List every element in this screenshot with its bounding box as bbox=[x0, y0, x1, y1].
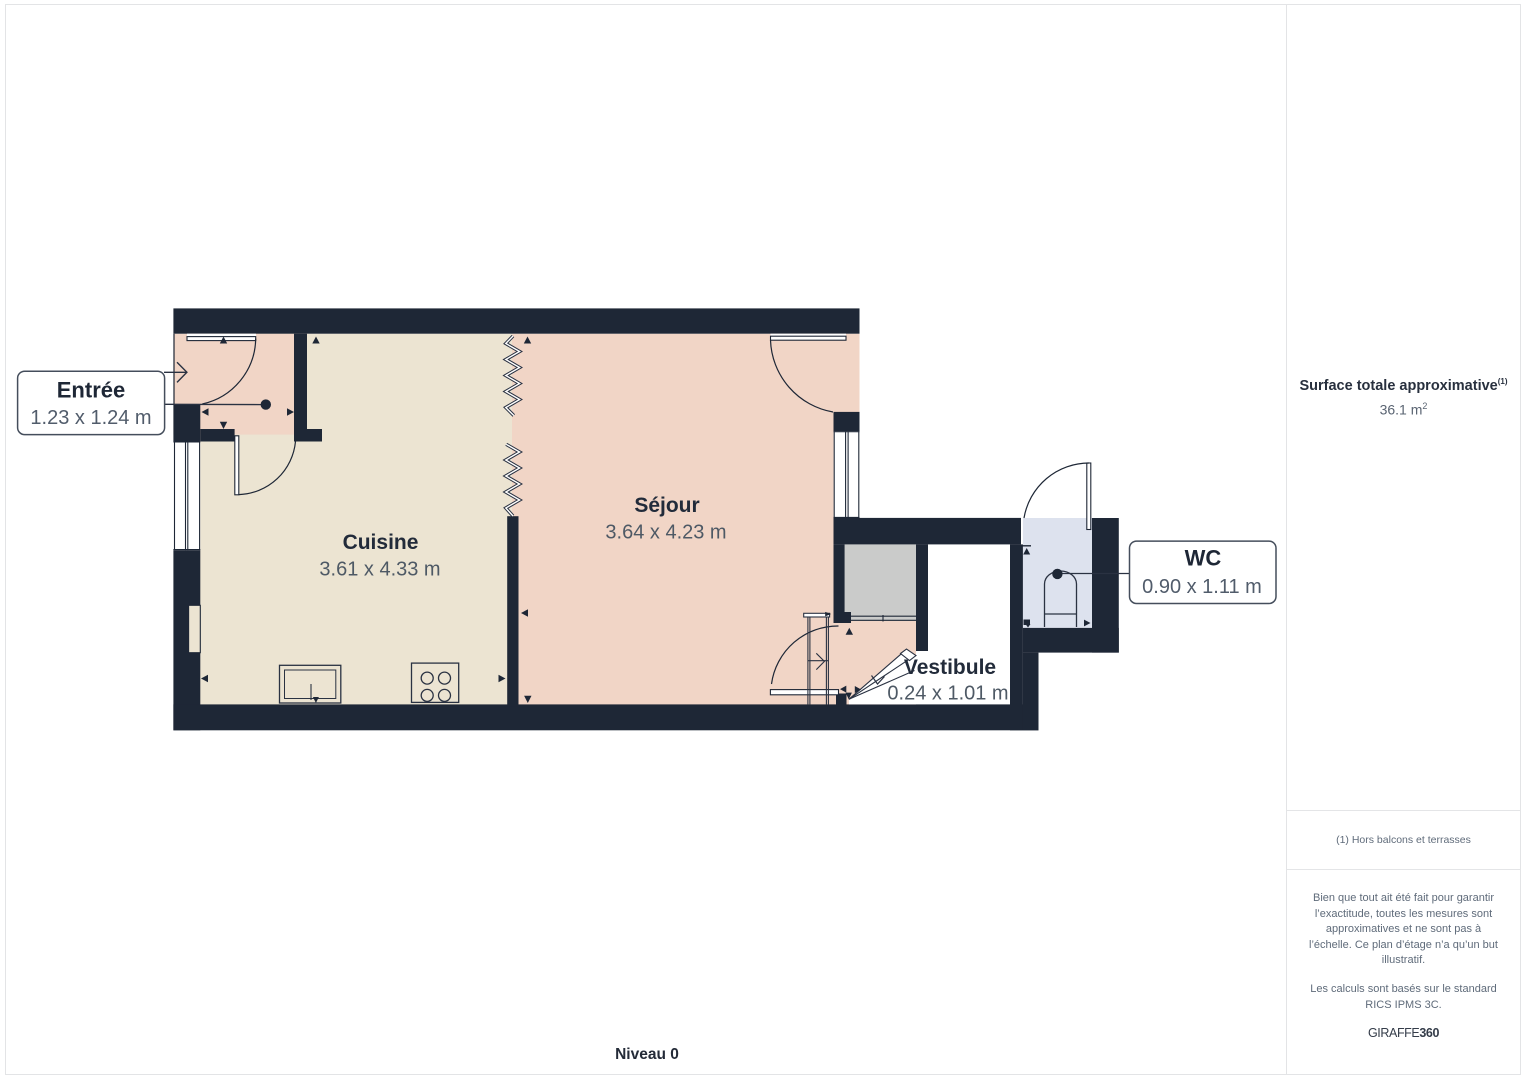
svg-text:3.64 x 4.23 m: 3.64 x 4.23 m bbox=[605, 522, 726, 544]
svg-text:3.61 x 4.33 m: 3.61 x 4.33 m bbox=[319, 559, 440, 581]
svg-text:Vestibule: Vestibule bbox=[904, 656, 996, 679]
svg-text:1.23 x 1.24 m: 1.23 x 1.24 m bbox=[30, 407, 151, 429]
svg-text:Séjour: Séjour bbox=[634, 494, 699, 517]
svg-text:Entrée: Entrée bbox=[57, 378, 125, 403]
svg-text:0.24 x 1.01 m: 0.24 x 1.01 m bbox=[887, 683, 1008, 705]
svg-text:WC: WC bbox=[1185, 546, 1222, 571]
svg-text:Cuisine: Cuisine bbox=[343, 531, 419, 554]
svg-text:0.90 x 1.11 m: 0.90 x 1.11 m bbox=[1142, 576, 1262, 598]
